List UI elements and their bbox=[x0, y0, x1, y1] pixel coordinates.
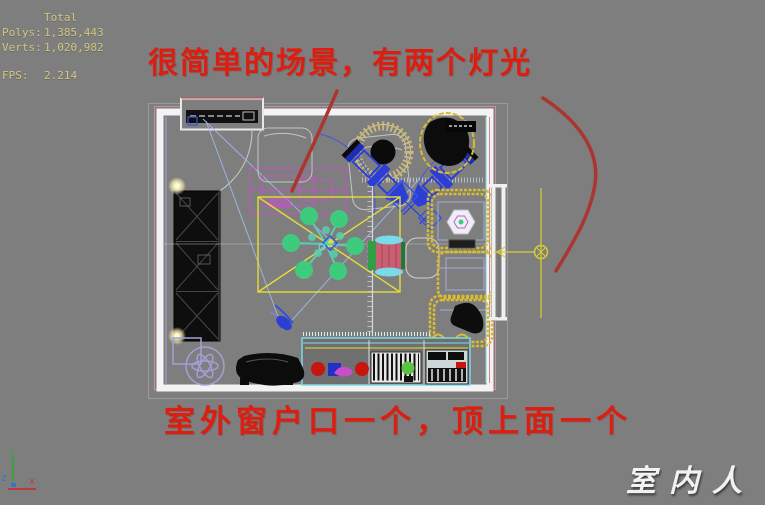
viewport-statistics: Total Polys: 1,385,443 Verts: 1,020,982 … bbox=[2, 10, 104, 83]
axis-z-label: z bbox=[1, 473, 7, 484]
annotation-top-text: 很简单的场景，有两个灯光 bbox=[148, 38, 532, 82]
tv-cabinet-object[interactable] bbox=[302, 334, 470, 385]
chandelier-object[interactable] bbox=[282, 207, 364, 280]
omni-light-glow[interactable] bbox=[168, 177, 186, 195]
world-axis-gizmo: y x z bbox=[1, 447, 36, 489]
omni-light-glow-2[interactable] bbox=[168, 327, 186, 345]
watermark-text: 室内人 bbox=[626, 456, 755, 500]
stats-verts-value: 1,020,982 bbox=[44, 40, 104, 55]
stats-fps-row: FPS: 2.214 bbox=[2, 68, 104, 83]
axis-x-label: x bbox=[29, 476, 35, 487]
stats-total-row: Total bbox=[2, 10, 104, 25]
stats-polys-label: Polys: bbox=[2, 25, 44, 40]
hexagon-lamp[interactable] bbox=[447, 210, 475, 248]
rug-object[interactable] bbox=[173, 338, 224, 385]
boot-object[interactable] bbox=[451, 303, 484, 334]
stats-fps-value: 2.214 bbox=[44, 68, 77, 83]
chair-object[interactable] bbox=[368, 236, 405, 277]
stats-polys-value: 1,385,443 bbox=[44, 25, 104, 40]
stats-verts-label: Verts: bbox=[2, 40, 44, 55]
wardrobe-object[interactable] bbox=[174, 191, 220, 341]
door-opening[interactable] bbox=[180, 98, 263, 203]
max-viewport-background: { "colors": { "background": "#7e7e7e", "… bbox=[0, 0, 765, 505]
bench-object[interactable] bbox=[236, 353, 304, 386]
stats-polys-row: Polys: 1,385,443 bbox=[2, 25, 104, 40]
axis-y-label: y bbox=[9, 447, 15, 458]
stats-fps-label: FPS: bbox=[2, 68, 44, 83]
stats-total-header: Total bbox=[44, 10, 77, 25]
stats-verts-row: Verts: 1,020,982 bbox=[2, 40, 104, 55]
red-sketch-curve-right bbox=[543, 98, 596, 271]
annotation-bottom-text: 室外窗户口一个，顶上面一个 bbox=[164, 396, 632, 441]
